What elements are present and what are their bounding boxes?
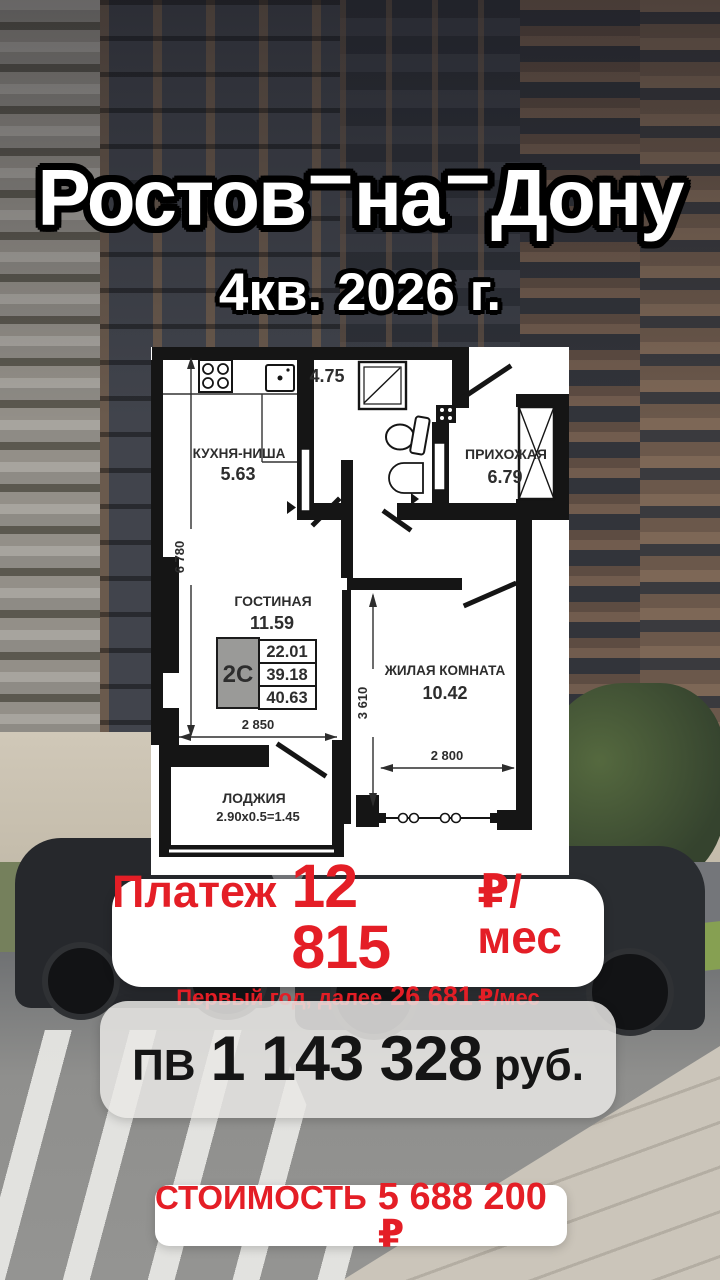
dim-living-width: 2 850 (242, 717, 275, 732)
payment-main-line: Платеж 12 815 ₽/мес (112, 856, 604, 978)
unit-info-table: 2С 22.01 39.18 40.63 (217, 638, 316, 709)
city-title-part: Ростов (37, 153, 305, 242)
price-card: СТОИМОСТЬ 5 688 200 ₽ (155, 1185, 567, 1246)
room-area-bedroom: 10.42 (422, 683, 467, 703)
room-label-kitchen: КУХНЯ-НИША (193, 446, 286, 461)
downpayment-card: ПВ 1 143 328 руб. (100, 1001, 616, 1118)
ad-canvas: Ростов–на–Дону 4кв. 2026 г. (0, 0, 720, 1280)
title-dash: – (308, 134, 351, 214)
floorplan-panel: 2С 22.01 39.18 40.63 КУХНЯ-НИША 5.63 4.7… (151, 347, 569, 875)
dim-bedroom-width: 2 800 (431, 748, 464, 763)
room-label-living: ГОСТИНАЯ (234, 593, 311, 609)
room-area-hallway: 6.79 (487, 467, 522, 487)
title-dash: – (446, 134, 489, 214)
payment-value: 12 815 (291, 856, 468, 978)
unit-type-label: 2С (223, 661, 254, 688)
dim-total-height: 6 780 (172, 541, 187, 574)
dim-bedroom-height: 3 610 (355, 687, 370, 720)
room-label-hallway: ПРИХОЖАЯ (465, 446, 547, 462)
city-title: Ростов–на–Дону (0, 158, 720, 238)
room-area-kitchen: 5.63 (220, 464, 255, 484)
downpayment-unit: руб. (494, 1044, 584, 1088)
payment-unit: ₽/мес (477, 868, 604, 960)
room-area-bathroom: 4.75 (309, 366, 344, 386)
monthly-payment-card: Платеж 12 815 ₽/мес Первый год, далее 26… (112, 879, 604, 987)
city-title-part: Дону (491, 153, 683, 242)
city-title-part: на (354, 153, 443, 242)
room-area-living: 11.59 (250, 613, 294, 633)
unit-area-row: 40.63 (266, 689, 307, 707)
room-area-loggia: 2.90х0.5=1.45 (216, 809, 300, 824)
price-label: СТОИМОСТЬ (155, 1181, 367, 1214)
floorplan-svg: 2С 22.01 39.18 40.63 КУХНЯ-НИША 5.63 4.7… (151, 347, 569, 875)
price-value: 5 688 200 ₽ (378, 1178, 567, 1254)
completion-date: 4кв. 2026 г. (0, 266, 720, 319)
downpayment-label: ПВ (132, 1044, 195, 1088)
room-label-bedroom: ЖИЛАЯ КОМНАТА (384, 663, 506, 678)
window-icon (379, 813, 497, 823)
shower-icon (359, 362, 406, 409)
plan-walls (151, 347, 569, 857)
stove-icon (199, 360, 232, 392)
downpayment-value: 1 143 328 (210, 1028, 481, 1091)
room-label-loggia: ЛОДЖИЯ (222, 790, 285, 806)
door-marker (287, 501, 296, 514)
price-line: СТОИМОСТЬ 5 688 200 ₽ (155, 1178, 567, 1254)
unit-area-row: 39.18 (266, 666, 307, 684)
washbasin-icon (389, 463, 423, 493)
downpayment-line: ПВ 1 143 328 руб. (132, 1028, 584, 1091)
sink-icon (266, 365, 294, 391)
payment-label: Платеж (112, 869, 276, 914)
toilet-icon (386, 416, 430, 455)
unit-area-row: 22.01 (266, 643, 307, 661)
